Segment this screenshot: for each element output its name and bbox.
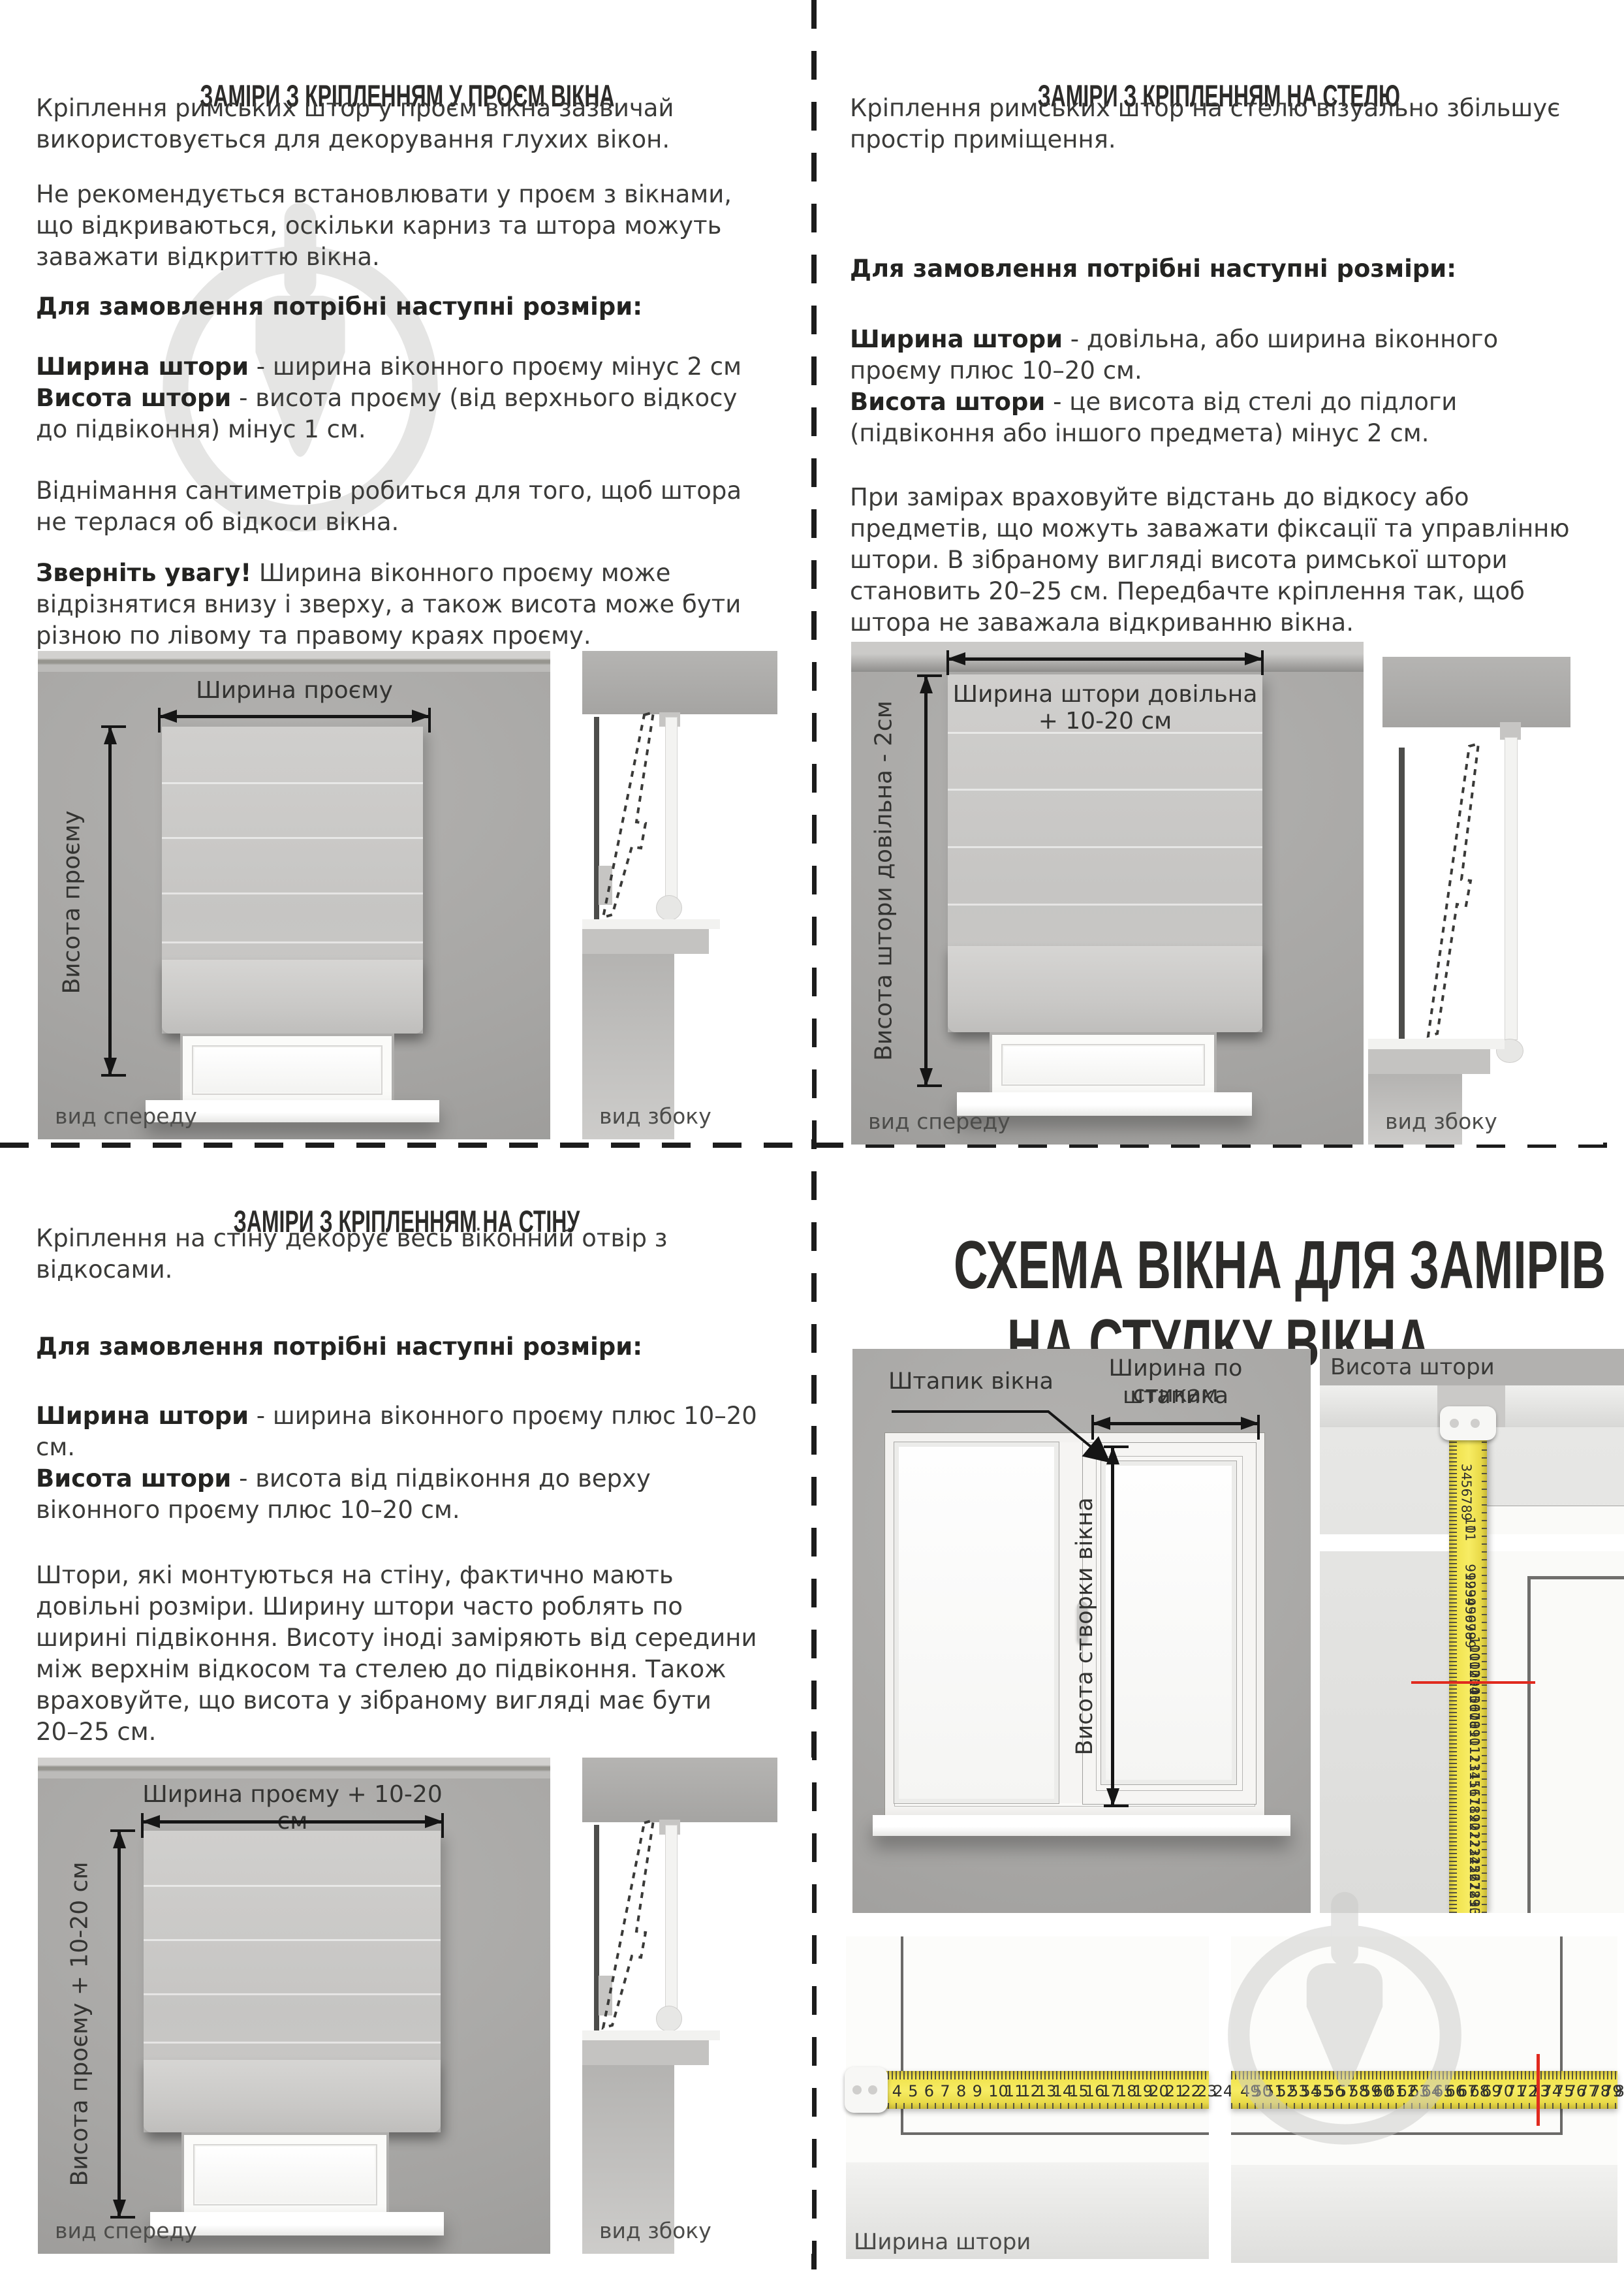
sill-section: [1368, 1049, 1490, 1075]
q1-side-view-image: вид збоку: [582, 651, 812, 1139]
glass-edge-horizontal: [901, 2132, 1209, 2135]
q3-paragraph-3: Штори, які монтуються на стіну, фактично…: [36, 1560, 757, 1748]
q3-height-arrow: [117, 1831, 121, 2217]
q3-width-arrow: [142, 1820, 443, 1824]
tape-number: 5: [908, 2082, 918, 2100]
tape-number: 5: [1458, 1480, 1474, 1489]
q1-paragraph-2: Не рекомендується встановлювати у проєм …: [36, 179, 757, 273]
roman-blind: [144, 1831, 441, 2132]
bead-label: Штапик вікна: [888, 1368, 1054, 1395]
tape-number: 8: [1458, 1504, 1474, 1513]
window-opening: [180, 1034, 394, 1107]
sash-gap-horizontal: [1527, 1576, 1624, 1579]
bead-width-arrow: [1093, 1422, 1258, 1425]
sash-height-label: Висота створки вікна: [1072, 1497, 1098, 1755]
q2-height-arrow: [924, 676, 928, 1086]
q1-side-caption: вид збоку: [599, 1103, 711, 1129]
tape-number: 6: [1458, 1488, 1474, 1496]
q1-height-label: Висота проєму: [59, 810, 86, 994]
q1-paragraph-3: Віднімання сантиметрів робиться для того…: [36, 475, 757, 538]
q1-front-view-image: Ширина проєму Висота проєму вид спереду: [38, 651, 550, 1139]
curtain-height-label: Висота штори: [1330, 1354, 1495, 1380]
tape-number: 3: [1458, 1464, 1474, 1472]
q2-size-width: Ширина штори - довільна, або ширина віко…: [850, 324, 1571, 387]
q3-side-view-image: вид збоку: [582, 1758, 812, 2254]
tape-number: 4: [892, 2082, 902, 2100]
window-opening: [990, 1032, 1217, 1098]
sill-section: [582, 2040, 709, 2065]
ceiling-band: [851, 642, 1364, 672]
q3-paragraph-1: Кріплення на стіну декорує весь віконний…: [36, 1223, 757, 1286]
glass-edge-horizontal: [1231, 2132, 1563, 2135]
tape-number: 11: [1463, 1525, 1478, 1541]
sill-section: [582, 929, 709, 953]
q1-paragraph-1: Кріплення римських штор у проєм вікна за…: [36, 93, 757, 155]
q1-size-height: Висота штори - висота проєму (від верхнь…: [36, 383, 757, 445]
q3-order-heading: Для замовлення потрібні наступні розміри…: [36, 1331, 757, 1363]
q3-height-label: Висота проєму + 10-20 см: [67, 1861, 93, 2186]
tape-number: 131: [1467, 1899, 1482, 1913]
q1-width-label: Ширина проєму: [159, 677, 429, 704]
horizontal-tape-right-segment: 4950515253545556575859606162636465666768…: [1231, 2071, 1617, 2109]
sill-top: [582, 919, 720, 929]
crown-molding: [38, 651, 550, 672]
sash-height-arrow: [1111, 1447, 1114, 1806]
q3-front-caption: вид спереду: [55, 2218, 197, 2243]
q3-size-height: Висота штори - висота від підвіконня до …: [36, 1463, 757, 1526]
window-scheme-image: Штапик вікна Ширина по стикам штапика Ви…: [852, 1349, 1311, 1913]
q3-text: Кріплення на стіну декорує весь віконний…: [36, 1223, 757, 1748]
q2-side-caption: вид збоку: [1385, 1109, 1497, 1134]
horizontal-tape-left-segment: 3456789101112131415161718192021222324: [856, 2071, 1209, 2109]
q2-width-arrow: [948, 657, 1262, 661]
tape-number: 80: [1615, 2082, 1624, 2100]
q1-front-caption: вид спереду: [55, 1103, 197, 1129]
q1-order-heading: Для замовлення потрібні наступні розміри…: [36, 291, 757, 323]
q2-width-label: Ширина штори довільна + 10-20 см: [948, 681, 1262, 735]
q2-paragraph-1: Кріплення римських штор на стелю візуаль…: [850, 93, 1571, 155]
sash-gap-vertical: [1527, 1576, 1531, 1913]
q2-order-heading: Для замовлення потрібні наступні розміри…: [850, 253, 1571, 285]
tape-number: 4: [1458, 1472, 1474, 1480]
tape-number: 9: [973, 2082, 982, 2100]
tape-number: 24: [1213, 2082, 1234, 2100]
q2-side-view-image: вид збоку: [1368, 642, 1603, 1145]
tape-number: 7: [1458, 1496, 1474, 1505]
tape-hook-tab: [845, 2067, 888, 2113]
q2-front-caption: вид спереду: [868, 1109, 1010, 1134]
q2-height-label: Висота штори довільна - 2см: [871, 701, 898, 1061]
window-frame-corner: [1470, 1506, 1624, 1913]
q2-text: Кріплення римських штор на стелю візуаль…: [850, 93, 1571, 639]
red-measure-mark: [1411, 1681, 1535, 1684]
q2-front-view-image: Ширина штори довільна + 10-20 см Висота …: [851, 642, 1364, 1145]
leaflet-page: ЗАМІРИ З КРІПЛЕННЯМ У ПРОЄМ ВІКНА Кріпле…: [0, 0, 1624, 2291]
red-measure-mark: [1537, 2054, 1540, 2126]
q2-size-height: Висота штори - це висота від стелі до пі…: [850, 387, 1571, 449]
window-opening: [181, 2132, 389, 2217]
roman-blind: [162, 727, 423, 1034]
tape-number: 8: [956, 2082, 966, 2100]
tape-hook-tab: [1440, 1406, 1496, 1440]
tape-number: 6: [924, 2082, 934, 2100]
bead-width-label-line2: штапика: [1093, 1383, 1258, 1409]
q3-size-width: Ширина штори - ширина віконного проєму п…: [36, 1400, 757, 1463]
curtain-width-label: Ширина штори: [854, 2229, 1031, 2255]
q4-title-line1: СХЕМА ВІКНА ДЛЯ ЗАМІРІВ: [814, 1229, 1624, 1302]
tape-number: 7: [940, 2082, 950, 2100]
curtain-height-image: 3456789101191929394959697989910010110210…: [1320, 1349, 1624, 1913]
q1-height-arrow: [108, 727, 112, 1075]
q1-text: Кріплення римських штор у проєм вікна за…: [36, 93, 757, 652]
frame-lower-face: [1231, 2165, 1617, 2263]
sill-top: [582, 2030, 720, 2040]
q1-size-width: Ширина штори - ширина віконного проєму м…: [36, 351, 757, 383]
q3-width-label: Ширина проєму + 10-20 см: [142, 1781, 443, 1835]
sill-top: [1368, 1039, 1505, 1049]
q3-side-caption: вид збоку: [599, 2218, 711, 2243]
q1-note: Зверніть увагу! Ширина віконного проєму …: [36, 558, 757, 652]
q2-paragraph-3: При замірах враховуйте відстань до відко…: [850, 482, 1571, 639]
q1-width-arrow: [159, 715, 429, 718]
crown-molding: [38, 1758, 550, 1778]
q3-front-view-image: Ширина проєму + 10-20 см Висота проєму +…: [38, 1758, 550, 2254]
vertical-measuring-tape: 3456789101191929394959697989910010110210…: [1449, 1410, 1487, 1913]
